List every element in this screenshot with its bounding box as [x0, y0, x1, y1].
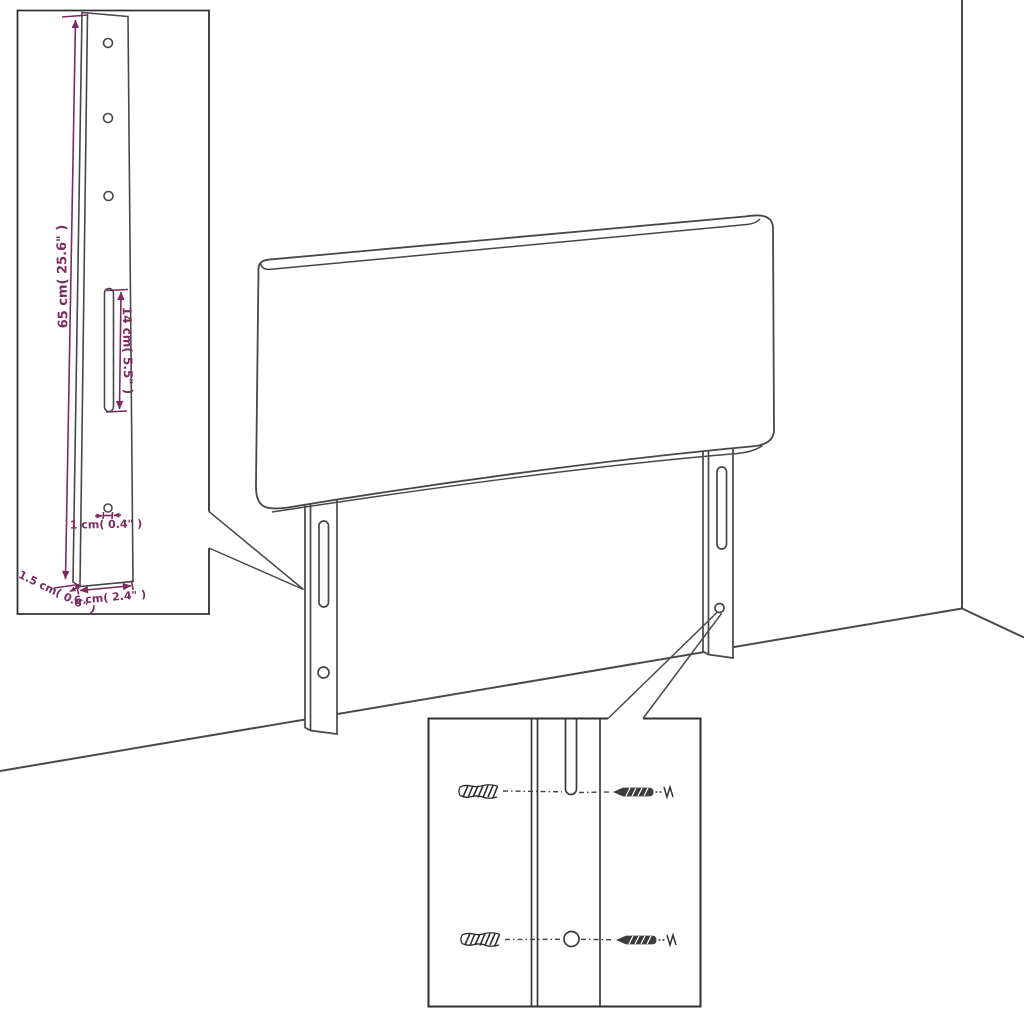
- right-leg-screw-hole: [715, 604, 724, 613]
- bracket-hole-2: [104, 114, 113, 123]
- slot-length-dimension-label: 14 cm( 5.5" ): [119, 295, 136, 405]
- headboard-right-leg: [703, 444, 733, 658]
- diagram-canvas: [0, 0, 1024, 1024]
- bracket-slot: [105, 289, 114, 412]
- headboard-left-leg: [305, 491, 337, 734]
- height-dimension-label: 65 cm( 25.6" ): [54, 211, 71, 341]
- mounting-detail-inset: [429, 613, 722, 1007]
- headboard-panel: [256, 215, 774, 512]
- bracket-hole-1: [104, 39, 113, 48]
- assembly-diagram: 65 cm( 25.6" ) 14 cm( 5.5" ) 1 cm( 0.4" …: [0, 0, 1024, 1024]
- bracket-small-hole: [104, 504, 112, 512]
- hole-diameter-dimension-label: 1 cm( 0.4" ): [46, 516, 166, 533]
- left-leg-slot: [319, 521, 329, 607]
- floor-line-right: [962, 609, 1024, 638]
- left-leg-screw-hole: [318, 667, 329, 678]
- bracket-hole-3: [104, 192, 113, 201]
- callout-lines-left: [209, 512, 304, 590]
- right-leg-slot: [717, 467, 727, 549]
